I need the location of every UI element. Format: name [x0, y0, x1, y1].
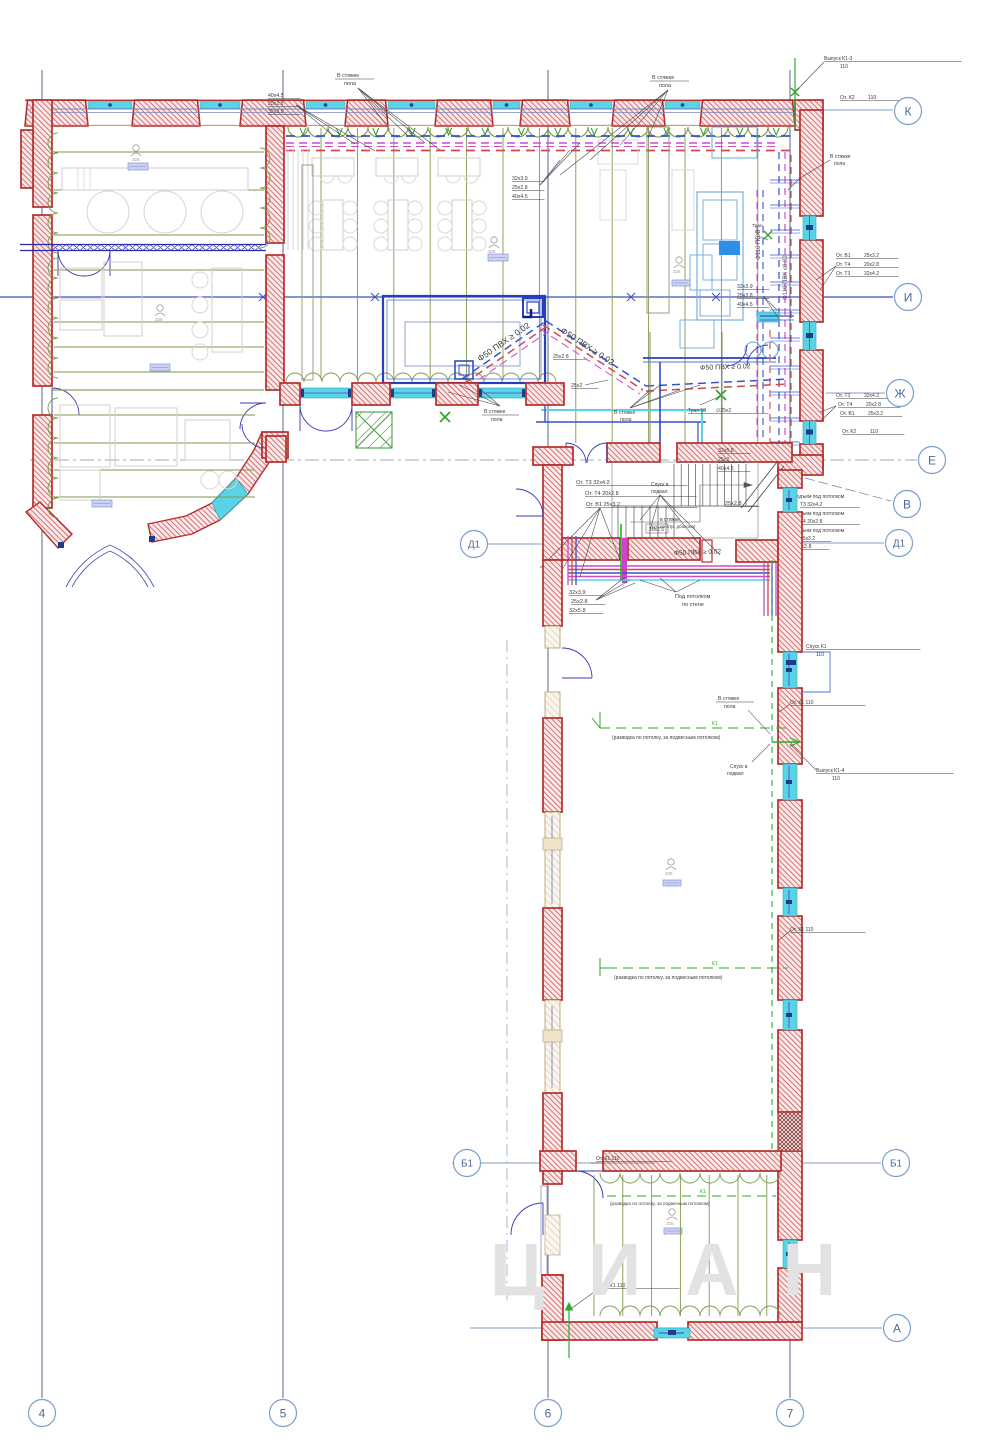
svg-text:7: 7	[787, 1406, 794, 1420]
svg-text:От. Т4: От. Т4	[836, 262, 850, 268]
svg-text:∅25х2: ∅25х2	[716, 408, 731, 414]
svg-text:От. Т4 20х2.8: От. Т4 20х2.8	[585, 491, 619, 497]
svg-text:20х2.5: 20х2.5	[649, 527, 664, 533]
svg-text:К: К	[905, 104, 912, 118]
svg-text:4: 4	[39, 1406, 46, 1420]
svg-text:110: 110	[868, 95, 876, 101]
svg-text:Б1: Б1	[890, 1159, 903, 1170]
svg-text:Выпуск К1-4: Выпуск К1-4	[816, 768, 845, 774]
svg-text:32х3.9: 32х3.9	[512, 176, 528, 182]
svg-text:От. Т3 32х4.2: От. Т3 32х4.2	[576, 480, 610, 486]
svg-text:(разводка по потолку, за подве: (разводка по потолку, за подвесным потол…	[610, 1201, 710, 1206]
svg-text:Т3 32х4.2: Т3 32х4.2	[800, 502, 822, 508]
svg-text:32х4.2: 32х4.2	[864, 271, 879, 277]
svg-text:В стяжке: В стяжке	[484, 409, 505, 415]
svg-text:25х3.2: 25х3.2	[864, 253, 879, 259]
svg-text:Трап 50: Трап 50	[688, 408, 706, 414]
svg-text:От. В1: От. В1	[840, 411, 855, 417]
svg-text:Спуск в: Спуск в	[651, 482, 669, 488]
svg-text:От. К1 110: От. К1 110	[790, 700, 814, 706]
svg-text:Д1: Д1	[893, 539, 906, 550]
svg-text:От. К1 110: От. К1 110	[790, 927, 814, 933]
svg-text:110: 110	[816, 652, 824, 658]
svg-text:пола: пола	[620, 417, 632, 423]
svg-text:пола: пола	[724, 704, 736, 710]
svg-text:К1: К1	[712, 961, 718, 967]
svg-text:20х2.8: 20х2.8	[866, 402, 881, 408]
svg-text:От. Т3: От. Т3	[836, 393, 850, 399]
svg-text:От. К1 110: От. К1 110	[596, 1156, 620, 1162]
svg-text:32х3.9: 32х3.9	[569, 590, 586, 596]
svg-text:по стене: по стене	[682, 602, 704, 608]
svg-text:(разводка по потолку, за подве: (разводка по потолку, за подвесным потол…	[612, 735, 721, 741]
svg-text:40х4.5: 40х4.5	[718, 466, 734, 472]
svg-text:5: 5	[280, 1406, 287, 1420]
svg-text:Трап: Трап	[752, 223, 763, 229]
svg-text:40х4.5: 40х4.5	[268, 93, 284, 99]
svg-text:Под потолком: Под потолком	[675, 594, 711, 600]
svg-text:От. Т4: От. Т4	[838, 402, 852, 408]
svg-text:325: 325	[665, 871, 673, 876]
svg-text:32х5.8: 32х5.8	[569, 608, 586, 614]
svg-text:25х2.8: 25х2.8	[268, 101, 284, 107]
svg-text:40х4.5: 40х4.5	[512, 194, 528, 200]
svg-text:В стяжке: В стяжке	[652, 75, 674, 81]
svg-text:25х2: 25х2	[571, 383, 582, 389]
svg-text:325: 325	[155, 317, 163, 322]
svg-text:От. В1: От. В1	[836, 253, 851, 259]
svg-text:В стяжке: В стяжке	[718, 696, 739, 702]
svg-text:Φ110 ПВХ ≤0.02: Φ110 ПВХ ≤0.02	[783, 255, 789, 300]
svg-text:В стяжке: В стяжке	[614, 410, 635, 416]
svg-text:В стяжке: В стяжке	[337, 73, 359, 79]
svg-text:пола: пола	[834, 161, 845, 167]
svg-text:110: 110	[832, 776, 840, 782]
svg-text:325: 325	[666, 1221, 674, 1226]
svg-text:32х4.2: 32х4.2	[864, 393, 879, 399]
svg-text:И: И	[904, 290, 913, 304]
svg-text:пола: пола	[659, 83, 671, 89]
svg-text:От. Т3: От. Т3	[836, 271, 850, 277]
svg-text:6: 6	[545, 1406, 552, 1420]
svg-text:в стяжке: в стяжке	[660, 517, 680, 523]
svg-text:110: 110	[870, 429, 878, 435]
svg-text:ЦИАН: ЦИАН	[490, 1228, 880, 1311]
svg-text:подвал: подвал	[651, 489, 668, 495]
svg-text:(разводка по потолку, за подве: (разводка по потолку, за подвесным потол…	[614, 975, 723, 981]
svg-text:20х2.8: 20х2.8	[864, 262, 879, 268]
svg-text:25х2.8: 25х2.8	[725, 501, 742, 507]
svg-text:пола: пола	[491, 417, 503, 423]
svg-text:25х2.8: 25х2.8	[553, 354, 569, 360]
svg-text:110: 110	[840, 64, 848, 70]
svg-text:25х2.8: 25х2.8	[512, 185, 528, 191]
svg-text:К1: К1	[700, 1189, 706, 1195]
svg-text:32х5.8: 32х5.8	[718, 448, 734, 454]
svg-text:25х2.8: 25х2.8	[737, 293, 753, 299]
svg-text:Ж: Ж	[894, 386, 905, 400]
svg-text:325: 325	[488, 249, 496, 254]
svg-text:32х3.9: 32х3.9	[268, 109, 284, 115]
svg-text:К1: К1	[712, 721, 718, 727]
svg-text:Д1: Д1	[468, 540, 481, 551]
svg-text:В: В	[903, 497, 911, 511]
svg-text:От. В1 25х3.2: От. В1 25х3.2	[586, 502, 620, 508]
svg-text:Спуск К1: Спуск К1	[806, 644, 827, 650]
svg-text:325: 325	[673, 269, 681, 274]
svg-text:Спуск в: Спуск в	[730, 764, 748, 770]
svg-text:25х2.8: 25х2.8	[571, 599, 588, 605]
svg-text:25х3.2: 25х3.2	[868, 411, 883, 417]
svg-text:40х4.5: 40х4.5	[737, 302, 753, 308]
svg-text:32х3.9: 32х3.9	[737, 284, 753, 290]
svg-text:пола: пола	[344, 81, 356, 87]
svg-text:А: А	[893, 1321, 901, 1335]
svg-text:325: 325	[132, 157, 140, 162]
svg-text:Б1: Б1	[461, 1159, 474, 1170]
svg-text:Т4 20х2.8: Т4 20х2.8	[800, 519, 822, 525]
svg-text:Выпуск К1-3: Выпуск К1-3	[824, 56, 853, 62]
svg-text:Е: Е	[928, 453, 936, 467]
svg-text:50: 50	[755, 229, 761, 235]
svg-text:25х2: 25х2	[718, 457, 729, 463]
svg-text:В стяжке: В стяжке	[830, 154, 851, 160]
svg-text:Подъем под потолком: Подъем под потолком	[793, 494, 845, 500]
svg-text:От. К2: От. К2	[842, 429, 856, 435]
svg-text:подвал: подвал	[727, 771, 744, 777]
svg-text:От. К2: От. К2	[840, 95, 855, 101]
